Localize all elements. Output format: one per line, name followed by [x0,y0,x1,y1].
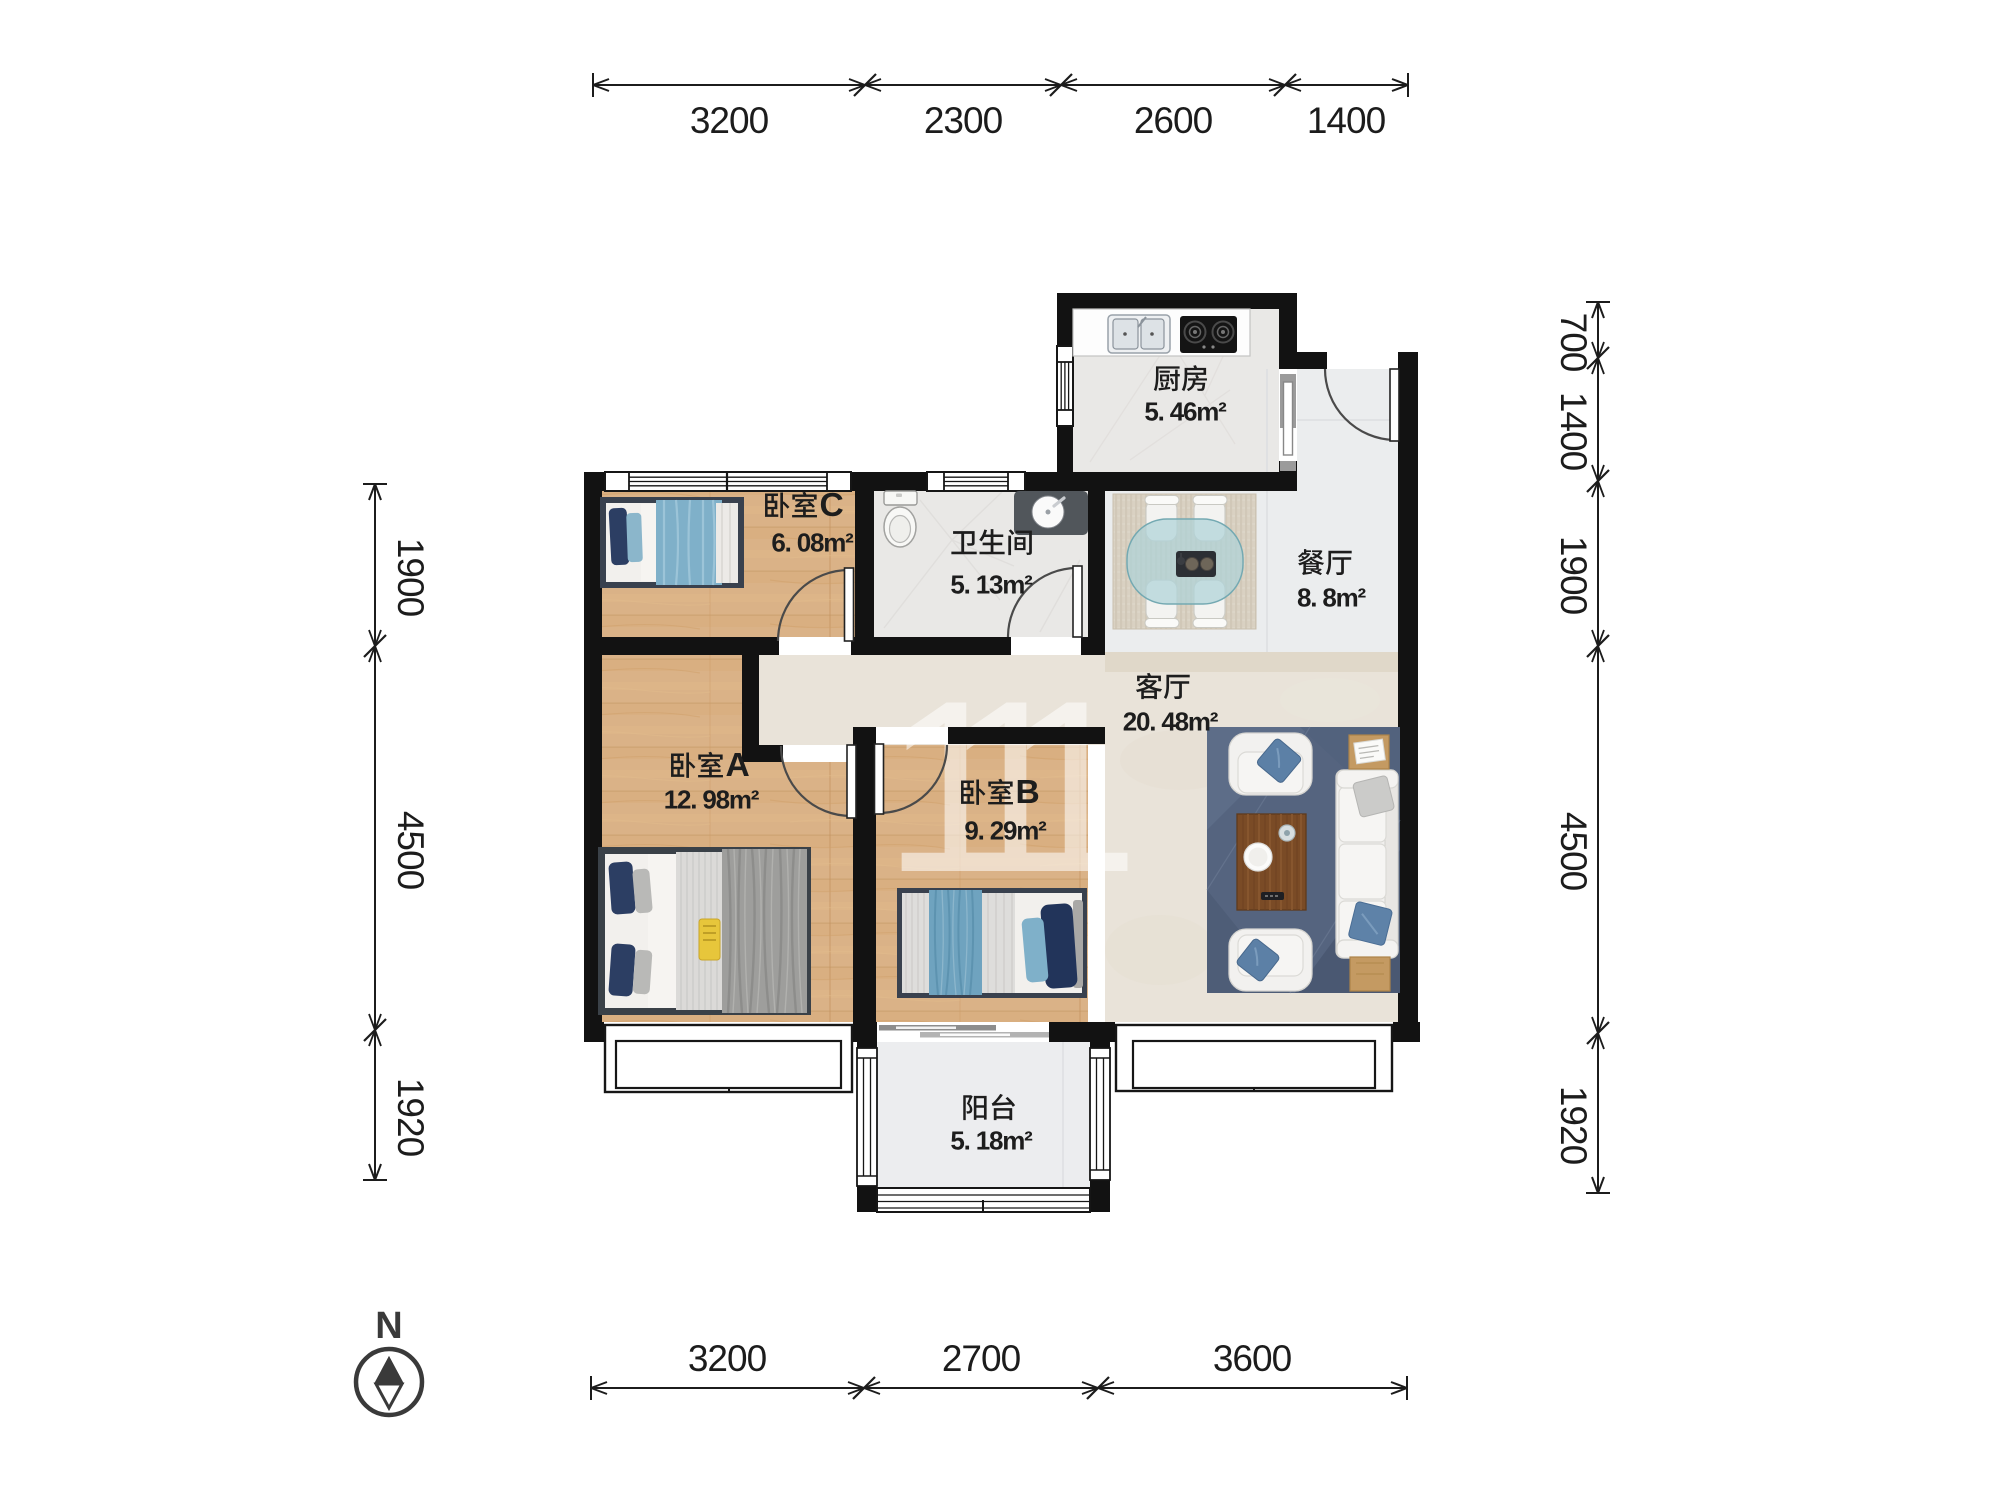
svg-text:9. 29m²: 9. 29m² [964,815,1047,845]
svg-text:A: A [725,747,749,784]
svg-text:1920: 1920 [1553,1086,1594,1165]
svg-text:1400: 1400 [1553,392,1594,471]
svg-text:2700: 2700 [942,1338,1021,1379]
svg-text:4500: 4500 [390,811,431,890]
svg-text:3600: 3600 [1213,1338,1292,1379]
svg-text:4500: 4500 [1553,812,1594,891]
svg-text:2600: 2600 [1134,100,1213,141]
svg-text:1400: 1400 [1307,100,1386,141]
svg-text:5. 18m²: 5. 18m² [950,1125,1033,1155]
svg-text:1900: 1900 [390,538,431,617]
svg-text:700: 700 [1553,313,1594,372]
svg-text:2300: 2300 [924,100,1003,141]
svg-text:1920: 1920 [390,1078,431,1157]
svg-text:20. 48m²: 20. 48m² [1123,706,1219,736]
svg-text:N: N [375,1305,402,1347]
svg-text:6. 08m²: 6. 08m² [771,527,854,557]
svg-text:8. 8m²: 8. 8m² [1297,582,1366,612]
svg-text:3200: 3200 [690,100,769,141]
svg-text:B: B [1015,774,1039,811]
svg-text:5. 13m²: 5. 13m² [950,569,1033,599]
svg-text:5. 46m²: 5. 46m² [1144,396,1227,426]
svg-text:3200: 3200 [688,1338,767,1379]
svg-text:1900: 1900 [1553,536,1594,615]
svg-text:C: C [819,487,843,524]
svg-text:12. 98m²: 12. 98m² [664,784,760,814]
